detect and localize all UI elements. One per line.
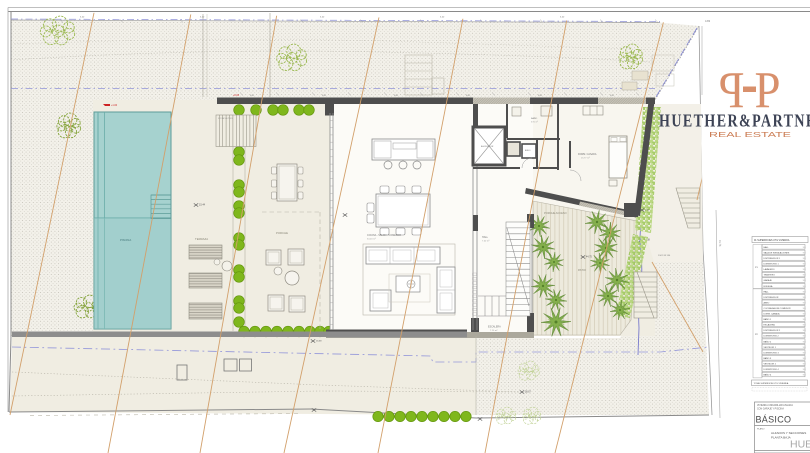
svg-text:+0.00: +0.00 (233, 94, 240, 97)
svg-text:PLANO: PLANO (757, 428, 765, 431)
svg-text:7.00 m²: 7.00 m² (482, 240, 490, 243)
svg-text:BAÑO 2: BAÑO 2 (764, 340, 772, 343)
svg-text:15.44: 15.44 (199, 204, 206, 207)
svg-text:9.9: 9.9 (803, 330, 806, 332)
svg-text:LAVADERO: LAVADERO (764, 268, 775, 271)
svg-text:9.9: 9.9 (803, 247, 806, 249)
svg-text:HALL: HALL (764, 246, 770, 249)
svg-text:DORMITORIO 1: DORMITORIO 1 (764, 264, 780, 266)
svg-text:PORCHE: PORCHE (276, 231, 288, 235)
svg-text:SALA DE INSTALACIONES: SALA DE INSTALACIONES (764, 252, 790, 255)
svg-text:BAÑO: BAÑO (531, 117, 537, 120)
svg-text:COCINA - SALON - COMEDOR: COCINA - SALON - COMEDOR (367, 234, 401, 237)
svg-text:DISTRIBUIDOR 1: DISTRIBUIDOR 1 (764, 258, 781, 260)
svg-text:ALZADOS Y SECCIONES: ALZADOS Y SECCIONES (771, 431, 806, 435)
svg-text:9.9: 9.9 (803, 258, 806, 260)
svg-text:P: P (718, 61, 744, 119)
svg-text:9.9: 9.9 (803, 253, 806, 255)
svg-text:9.9: 9.9 (803, 347, 806, 349)
svg-text:ESCALERA: ESCALERA (764, 324, 776, 327)
svg-text:9.9: 9.9 (803, 291, 806, 293)
svg-text:TRASTERO: TRASTERO (764, 274, 776, 277)
svg-text:9.9: 9.9 (803, 264, 806, 266)
svg-text:P: P (755, 61, 781, 119)
svg-text:PLANTA BAJA: PLANTA BAJA (771, 436, 791, 440)
svg-text:HUETHER&PARTNER: HUETHER&PARTNER (659, 112, 810, 131)
svg-text:3.95 m²: 3.95 m² (531, 121, 538, 124)
svg-text:44.75: 44.75 (586, 257, 592, 259)
svg-text:CON GARAJE Y PISCINA: CON GARAJE Y PISCINA (757, 407, 784, 410)
svg-text:16.68: 16.68 (316, 341, 322, 343)
svg-text:38.07: 38.07 (525, 392, 531, 394)
svg-text:9.9: 9.9 (803, 275, 806, 277)
svg-text:DISTRIBUIDOR: DISTRIBUIDOR (764, 297, 779, 299)
svg-text:TOTAL SUPERFICIE UTIL VIVIENDA: TOTAL SUPERFICIE UTIL VIVIENDA (754, 382, 789, 385)
svg-text:9.9: 9.9 (803, 286, 806, 288)
svg-text:HUE: HUE (790, 439, 810, 451)
svg-text:REAL ESTATE: REAL ESTATE (709, 132, 792, 139)
svg-text:9.9: 9.9 (803, 375, 806, 377)
svg-text:VESTIDOR 2: VESTIDOR 2 (764, 364, 777, 366)
svg-text:DORMITORIO 4: DORMITORIO 4 (764, 369, 780, 371)
svg-text:TERRAZA: TERRAZA (195, 237, 208, 241)
svg-text:9.9: 9.9 (803, 308, 806, 310)
svg-text:9.9: 9.9 (803, 358, 806, 360)
svg-text:PATIO: PATIO (578, 268, 587, 272)
svg-text:ESCALERA: ESCALERA (488, 326, 501, 329)
svg-text:BODEGA: BODEGA (764, 285, 774, 288)
svg-text:9.9: 9.9 (803, 336, 806, 338)
svg-text:9.9: 9.9 (803, 269, 806, 271)
svg-text:DISTRIBUIDOR 2: DISTRIBUIDOR 2 (764, 330, 781, 332)
svg-text:54.04 m²: 54.04 m² (367, 238, 376, 241)
svg-text:15.77 m²: 15.77 m² (581, 157, 590, 160)
svg-text:BAÑO 4: BAÑO 4 (764, 374, 772, 377)
svg-text:BÁSICO: BÁSICO (756, 415, 792, 425)
svg-text:01 SUPERFICIES UTIL VIVIENDA: 01 SUPERFICIES UTIL VIVIENDA (754, 239, 790, 242)
svg-text:DORMITORIO 3: DORMITORIO 3 (764, 352, 780, 354)
svg-text:ASEO: ASEO (764, 301, 770, 304)
svg-text:31.74: 31.74 (718, 240, 722, 247)
svg-text:+1.00: +1.00 (111, 104, 118, 107)
svg-text:9.9: 9.9 (803, 364, 806, 366)
svg-text:1 2 3 4 5 6 7 8 9: 1 2 3 4 5 6 7 8 9 (218, 118, 233, 120)
svg-text:BAÑO 1: BAÑO 1 (764, 318, 772, 321)
svg-text:BAÑO 3: BAÑO 3 (764, 357, 772, 360)
svg-text:ASCENSOR: ASCENSOR (481, 145, 494, 148)
svg-text:9.9: 9.9 (803, 352, 806, 354)
svg-text:9.9: 9.9 (803, 341, 806, 343)
svg-text:HALL: HALL (764, 290, 770, 293)
svg-text:VIVIENDA UNIFAMILIAR AISLADA: VIVIENDA UNIFAMILIAR AISLADA (757, 404, 793, 407)
svg-text:DORM. CASADA: DORM. CASADA (764, 313, 781, 316)
svg-text:PISCINA: PISCINA (120, 238, 131, 242)
svg-text:ASEO: ASEO (525, 149, 531, 152)
svg-text:PORCHE ACCESO: PORCHE ACCESO (544, 211, 567, 215)
svg-text:9.9: 9.9 (803, 325, 806, 327)
svg-text:DORMITORIO 2: DORMITORIO 2 (764, 336, 780, 338)
svg-text:DORM. CASADA: DORM. CASADA (578, 153, 597, 156)
svg-text:9.9: 9.9 (803, 280, 806, 282)
svg-text:7.10 m²: 7.10 m² (490, 329, 498, 332)
svg-text:9.9: 9.9 (803, 302, 806, 304)
svg-text:4.83: 4.83 (705, 19, 711, 23)
svg-text:9.9: 9.9 (803, 369, 806, 371)
svg-text:134 133 134: 134 133 134 (658, 255, 671, 257)
svg-text:VESTIDOR 1: VESTIDOR 1 (764, 347, 777, 349)
svg-text:GARAJE: GARAJE (764, 279, 773, 282)
svg-text:HALL: HALL (482, 236, 489, 239)
svg-text:COCINA SALON COMEDOR: COCINA SALON COMEDOR (764, 307, 792, 310)
svg-text:9.9: 9.9 (803, 319, 806, 321)
svg-text:9.9: 9.9 (803, 314, 806, 316)
svg-text:9.9: 9.9 (803, 297, 806, 299)
